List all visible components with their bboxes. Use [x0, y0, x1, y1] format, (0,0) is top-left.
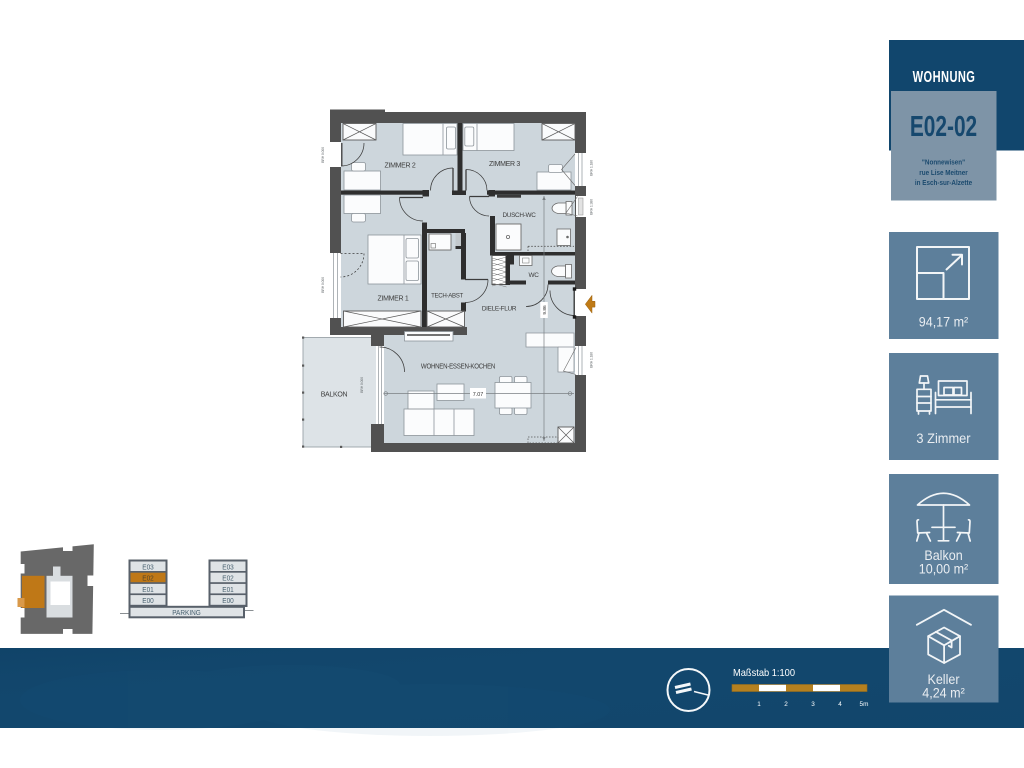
svg-text:2: 2 [784, 701, 788, 708]
svg-text:E02-02: E02-02 [910, 111, 977, 143]
svg-text:rue Lise Meitner: rue Lise Meitner [919, 169, 968, 176]
svg-text:4: 4 [838, 701, 842, 708]
svg-text:E00: E00 [142, 598, 154, 606]
svg-text:E02: E02 [222, 575, 234, 583]
svg-text:E01: E01 [222, 587, 234, 595]
svg-text:9.86: 9.86 [542, 305, 548, 315]
svg-text:E01: E01 [142, 587, 154, 595]
svg-text:WOHNUNG: WOHNUNG [913, 68, 976, 85]
svg-text:BRH 1.180: BRH 1.180 [590, 160, 594, 176]
svg-text:"Nonnewisen": "Nonnewisen" [922, 159, 965, 166]
svg-text:BALKON: BALKON [321, 392, 348, 399]
svg-text:E03: E03 [142, 564, 154, 572]
svg-text:DUSCH-WC: DUSCH-WC [502, 212, 536, 219]
svg-text:BRH 1.380: BRH 1.380 [590, 199, 594, 215]
svg-text:E00: E00 [222, 598, 234, 606]
svg-text:E03: E03 [222, 564, 234, 572]
svg-text:BRH 1.180: BRH 1.180 [590, 352, 594, 368]
svg-text:BRH 0.000: BRH 0.000 [360, 377, 364, 393]
svg-text:4,24 m²: 4,24 m² [922, 685, 965, 701]
svg-text:ZIMMER 2: ZIMMER 2 [384, 163, 415, 170]
svg-text:ZIMMER 1: ZIMMER 1 [377, 296, 408, 303]
svg-text:TECH-ABST: TECH-ABST [431, 293, 463, 300]
svg-text:PARKING: PARKING [172, 610, 201, 618]
svg-text:DIELE-FLUR: DIELE-FLUR [482, 306, 517, 313]
svg-text:BRH 0.000: BRH 0.000 [321, 147, 325, 163]
svg-text:ZIMMER 3: ZIMMER 3 [489, 161, 520, 168]
svg-text:BRH 0.000: BRH 0.000 [321, 277, 325, 293]
svg-text:10,00 m²: 10,00 m² [919, 561, 969, 577]
svg-text:1: 1 [757, 701, 761, 708]
svg-text:WOHNEN-ESSEN-KOCHEN: WOHNEN-ESSEN-KOCHEN [421, 363, 496, 370]
svg-text:Maßstab 1:100: Maßstab 1:100 [733, 668, 795, 679]
svg-text:E02: E02 [142, 575, 154, 583]
svg-text:5m: 5m [860, 701, 869, 708]
svg-text:3 Zimmer: 3 Zimmer [916, 431, 971, 447]
svg-text:3: 3 [811, 701, 815, 708]
svg-text:WC: WC [528, 272, 539, 279]
svg-text:in Esch-sur-Alzette: in Esch-sur-Alzette [915, 180, 972, 187]
svg-text:94,17 m²: 94,17 m² [919, 314, 969, 330]
svg-text:7.07: 7.07 [473, 392, 484, 398]
